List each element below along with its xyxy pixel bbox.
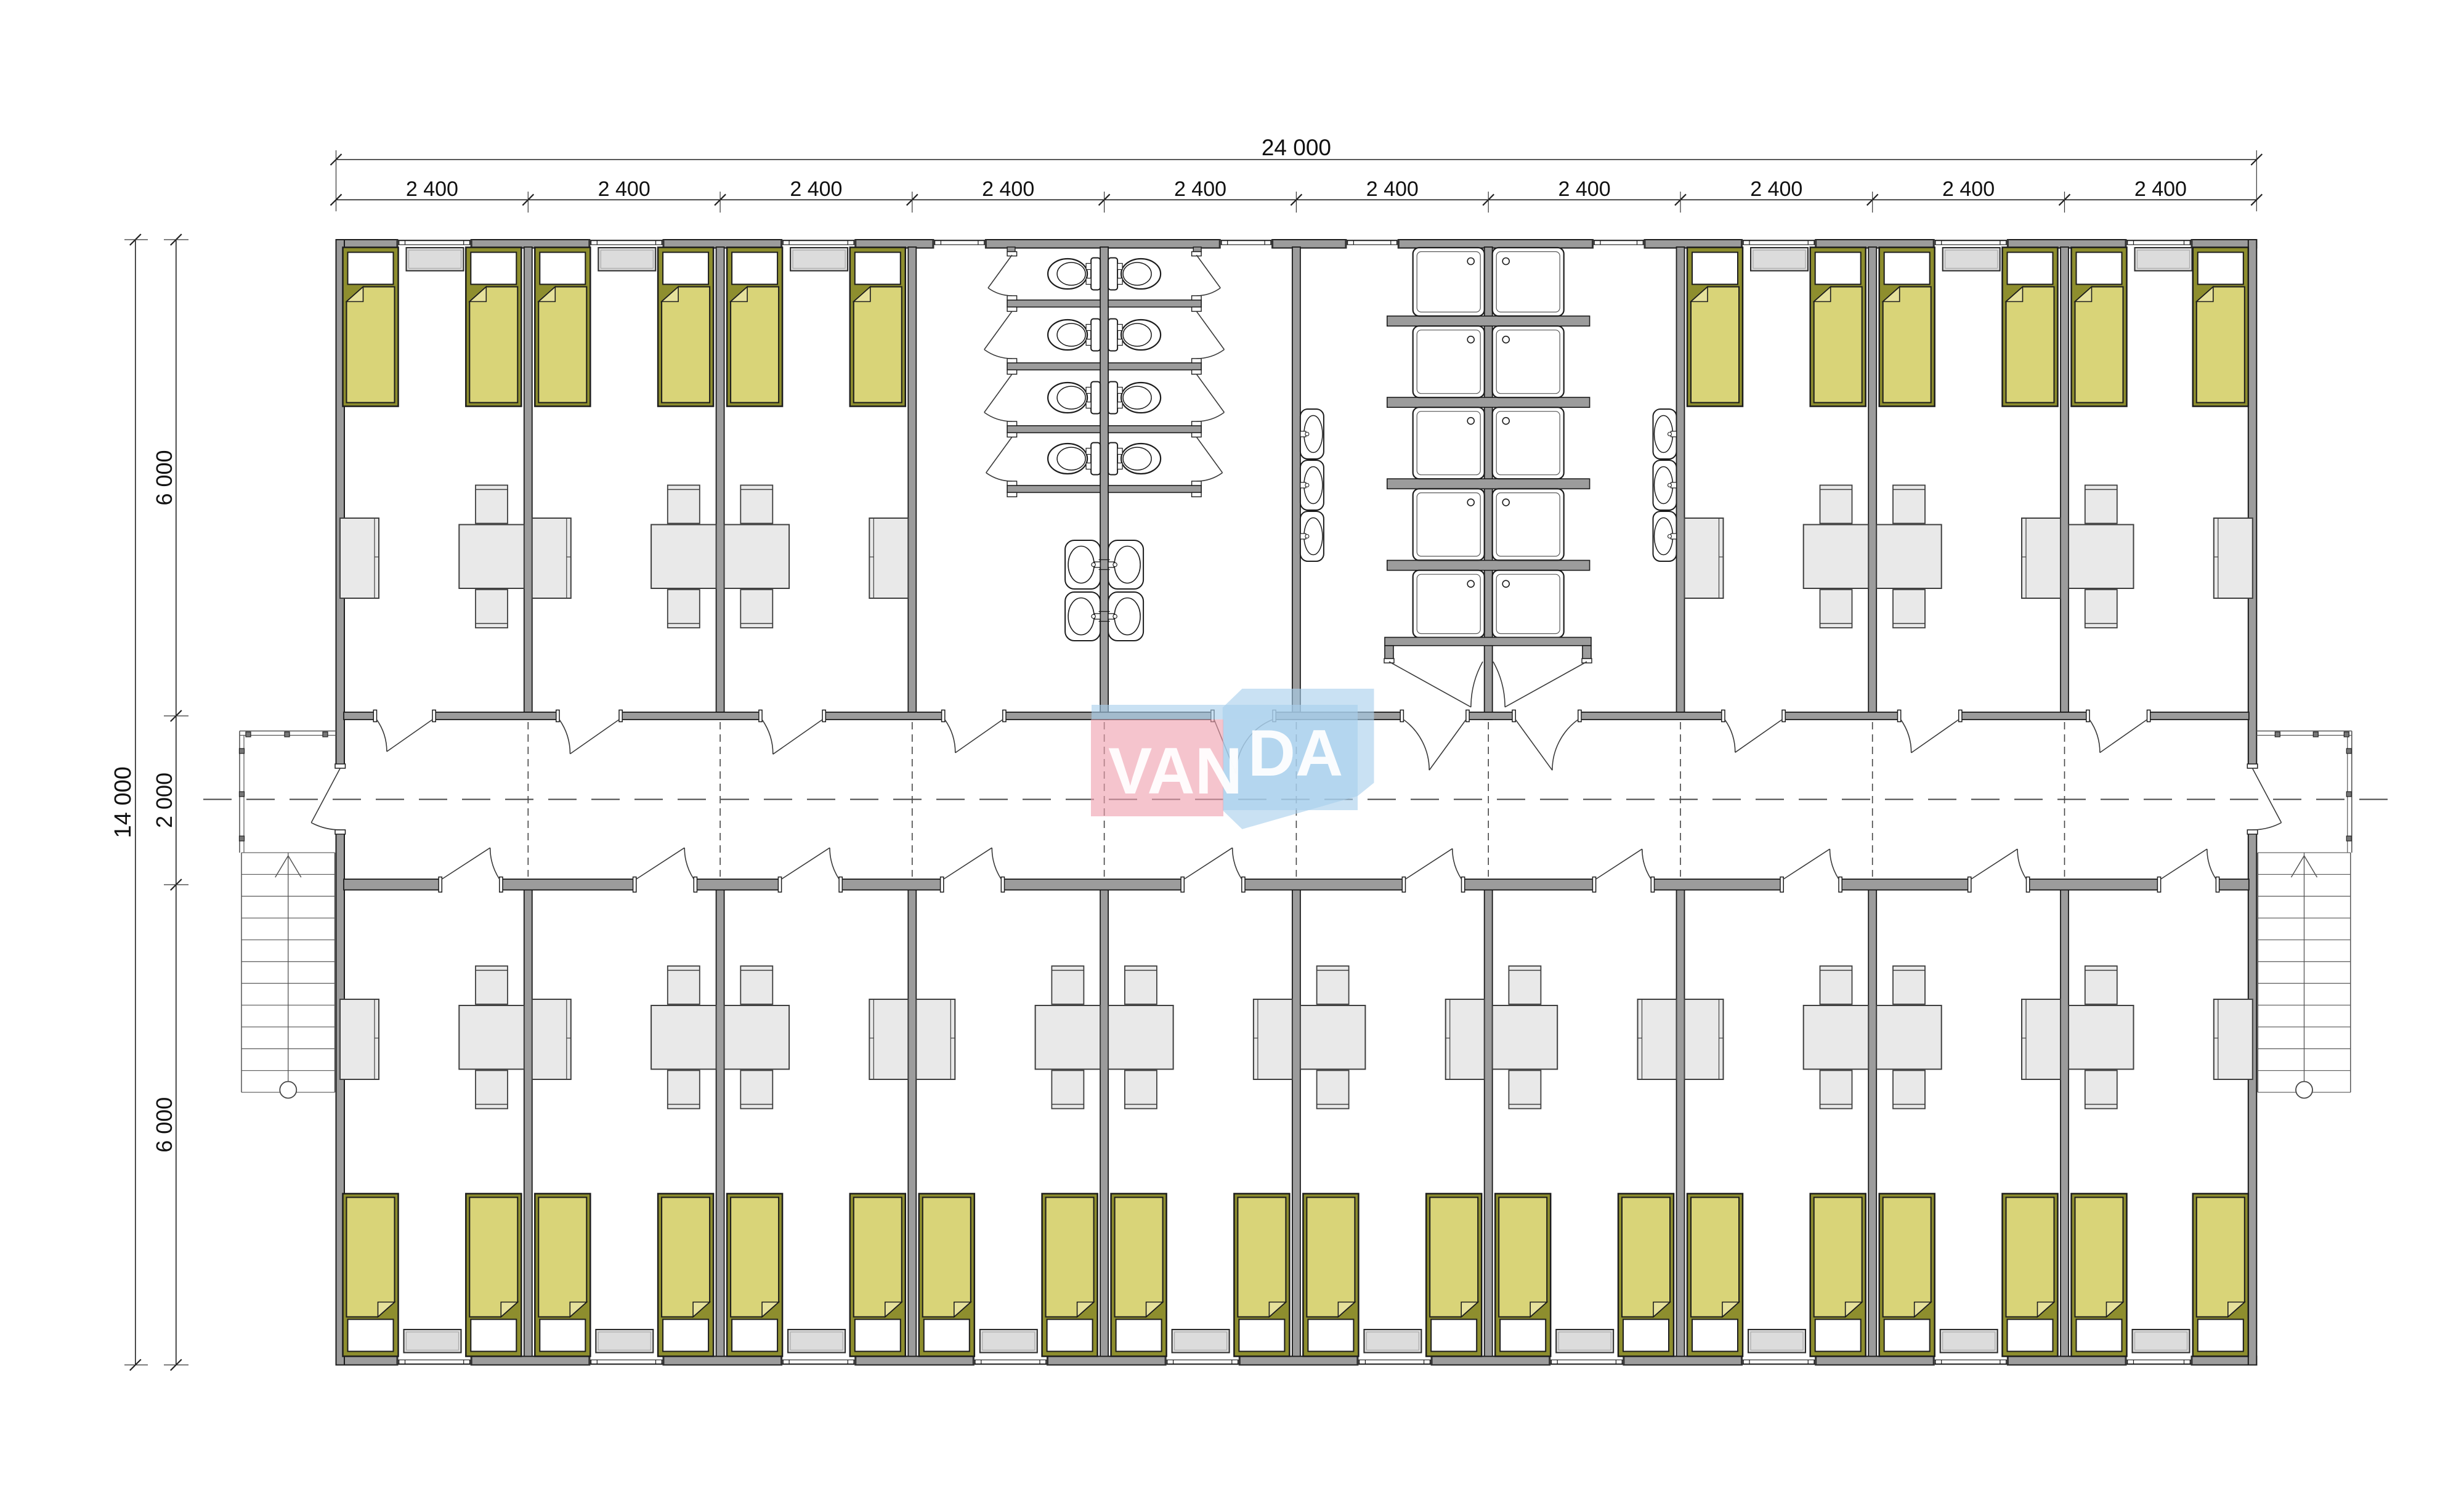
svg-text:2 400: 2 400 xyxy=(1942,177,1995,201)
svg-text:2 000: 2 000 xyxy=(152,773,177,828)
svg-text:2 400: 2 400 xyxy=(406,177,458,201)
svg-text:DA: DA xyxy=(1248,716,1343,790)
svg-text:2 400: 2 400 xyxy=(598,177,650,201)
svg-text:2 400: 2 400 xyxy=(1174,177,1226,201)
svg-text:14 000: 14 000 xyxy=(110,766,136,838)
svg-text:6 000: 6 000 xyxy=(152,1097,177,1153)
svg-text:VAN: VAN xyxy=(1108,734,1242,808)
svg-text:2 400: 2 400 xyxy=(790,177,842,201)
svg-text:2 400: 2 400 xyxy=(1366,177,1419,201)
svg-text:6 000: 6 000 xyxy=(152,450,177,505)
svg-text:2 400: 2 400 xyxy=(1750,177,1802,201)
svg-text:2 400: 2 400 xyxy=(982,177,1034,201)
svg-text:24 000: 24 000 xyxy=(1262,135,1331,160)
svg-text:2 400: 2 400 xyxy=(1558,177,1611,201)
svg-text:2 400: 2 400 xyxy=(2134,177,2187,201)
